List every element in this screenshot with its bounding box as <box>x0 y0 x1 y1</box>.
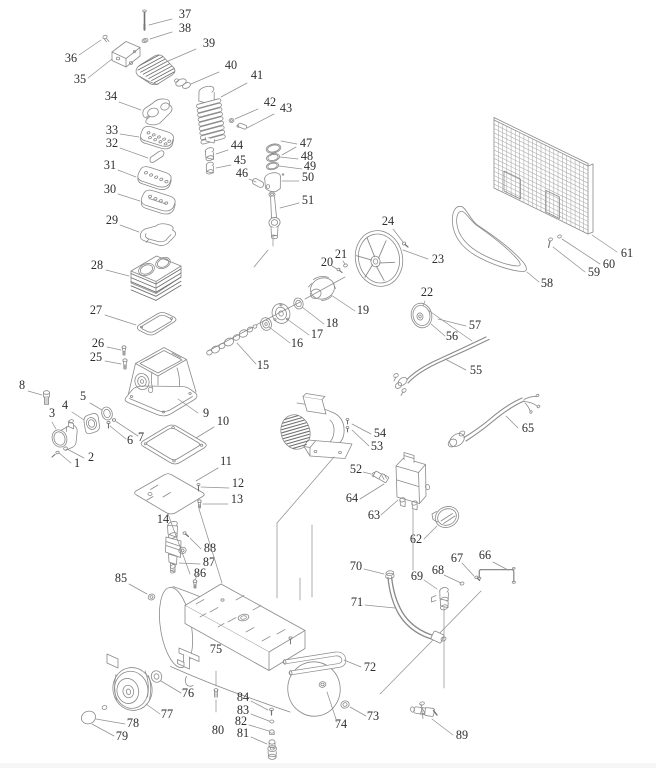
svg-text:57: 57 <box>469 318 481 332</box>
svg-text:1: 1 <box>74 456 80 470</box>
svg-text:88: 88 <box>204 541 216 555</box>
svg-text:85: 85 <box>115 571 127 585</box>
svg-text:56: 56 <box>446 329 458 343</box>
svg-text:52: 52 <box>350 462 362 476</box>
svg-text:73: 73 <box>367 709 379 723</box>
svg-text:9: 9 <box>203 406 209 420</box>
svg-text:77: 77 <box>161 707 173 721</box>
svg-text:22: 22 <box>421 285 433 299</box>
svg-text:44: 44 <box>231 138 243 152</box>
svg-text:17: 17 <box>311 327 323 341</box>
svg-text:58: 58 <box>541 276 553 290</box>
svg-text:19: 19 <box>357 303 369 317</box>
svg-text:54: 54 <box>374 426 386 440</box>
svg-text:60: 60 <box>603 257 615 271</box>
svg-text:33: 33 <box>106 123 118 137</box>
svg-text:5: 5 <box>80 389 86 403</box>
svg-text:78: 78 <box>127 716 139 730</box>
svg-text:11: 11 <box>220 454 232 468</box>
svg-text:30: 30 <box>104 182 116 196</box>
svg-text:16: 16 <box>291 336 303 350</box>
svg-text:31: 31 <box>104 158 116 172</box>
svg-text:81: 81 <box>237 726 249 740</box>
svg-text:10: 10 <box>217 414 229 428</box>
svg-text:4: 4 <box>62 398 68 412</box>
svg-text:18: 18 <box>326 316 338 330</box>
svg-text:32: 32 <box>106 136 118 150</box>
svg-text:36: 36 <box>65 51 77 65</box>
svg-text:23: 23 <box>432 252 444 266</box>
svg-text:14: 14 <box>157 512 169 526</box>
svg-text:68: 68 <box>432 563 444 577</box>
svg-text:61: 61 <box>621 246 633 260</box>
svg-text:50: 50 <box>302 170 314 184</box>
svg-text:84: 84 <box>237 690 249 704</box>
svg-text:39: 39 <box>203 36 215 50</box>
svg-text:2: 2 <box>88 450 94 464</box>
svg-text:46: 46 <box>236 166 248 180</box>
svg-text:12: 12 <box>232 476 244 490</box>
svg-text:59: 59 <box>588 265 600 279</box>
svg-text:26: 26 <box>92 336 104 350</box>
svg-text:74: 74 <box>335 717 347 731</box>
svg-text:64: 64 <box>346 491 358 505</box>
svg-text:8: 8 <box>19 378 25 392</box>
svg-text:66: 66 <box>479 548 491 562</box>
svg-text:89: 89 <box>456 728 468 742</box>
svg-text:63: 63 <box>368 508 380 522</box>
svg-text:53: 53 <box>371 439 383 453</box>
svg-text:28: 28 <box>91 258 103 272</box>
svg-text:29: 29 <box>106 213 118 227</box>
svg-text:70: 70 <box>350 559 362 573</box>
svg-text:51: 51 <box>302 193 314 207</box>
svg-text:38: 38 <box>179 21 191 35</box>
svg-text:40: 40 <box>225 58 237 72</box>
svg-text:3: 3 <box>49 406 55 420</box>
svg-text:55: 55 <box>470 363 482 377</box>
svg-text:24: 24 <box>382 214 394 228</box>
svg-text:47: 47 <box>300 136 312 150</box>
svg-text:27: 27 <box>90 303 102 317</box>
svg-text:71: 71 <box>351 595 363 609</box>
svg-text:13: 13 <box>231 492 243 506</box>
svg-text:75: 75 <box>210 642 222 656</box>
svg-text:62: 62 <box>410 532 422 546</box>
svg-text:43: 43 <box>280 101 292 115</box>
svg-text:25: 25 <box>90 350 102 364</box>
svg-text:76: 76 <box>182 686 194 700</box>
svg-text:37: 37 <box>179 7 191 21</box>
svg-text:41: 41 <box>251 68 263 82</box>
svg-text:65: 65 <box>522 421 534 435</box>
svg-text:67: 67 <box>451 551 463 565</box>
svg-text:69: 69 <box>411 569 423 583</box>
svg-text:35: 35 <box>74 72 86 86</box>
svg-text:15: 15 <box>257 358 269 372</box>
svg-text:80: 80 <box>212 723 224 737</box>
svg-text:79: 79 <box>116 729 128 743</box>
svg-text:6: 6 <box>127 433 133 447</box>
svg-text:42: 42 <box>264 95 276 109</box>
svg-text:21: 21 <box>335 247 347 261</box>
svg-text:72: 72 <box>364 660 376 674</box>
svg-text:45: 45 <box>234 153 246 167</box>
svg-text:7: 7 <box>138 430 144 444</box>
svg-text:20: 20 <box>321 255 333 269</box>
svg-text:34: 34 <box>105 89 117 103</box>
